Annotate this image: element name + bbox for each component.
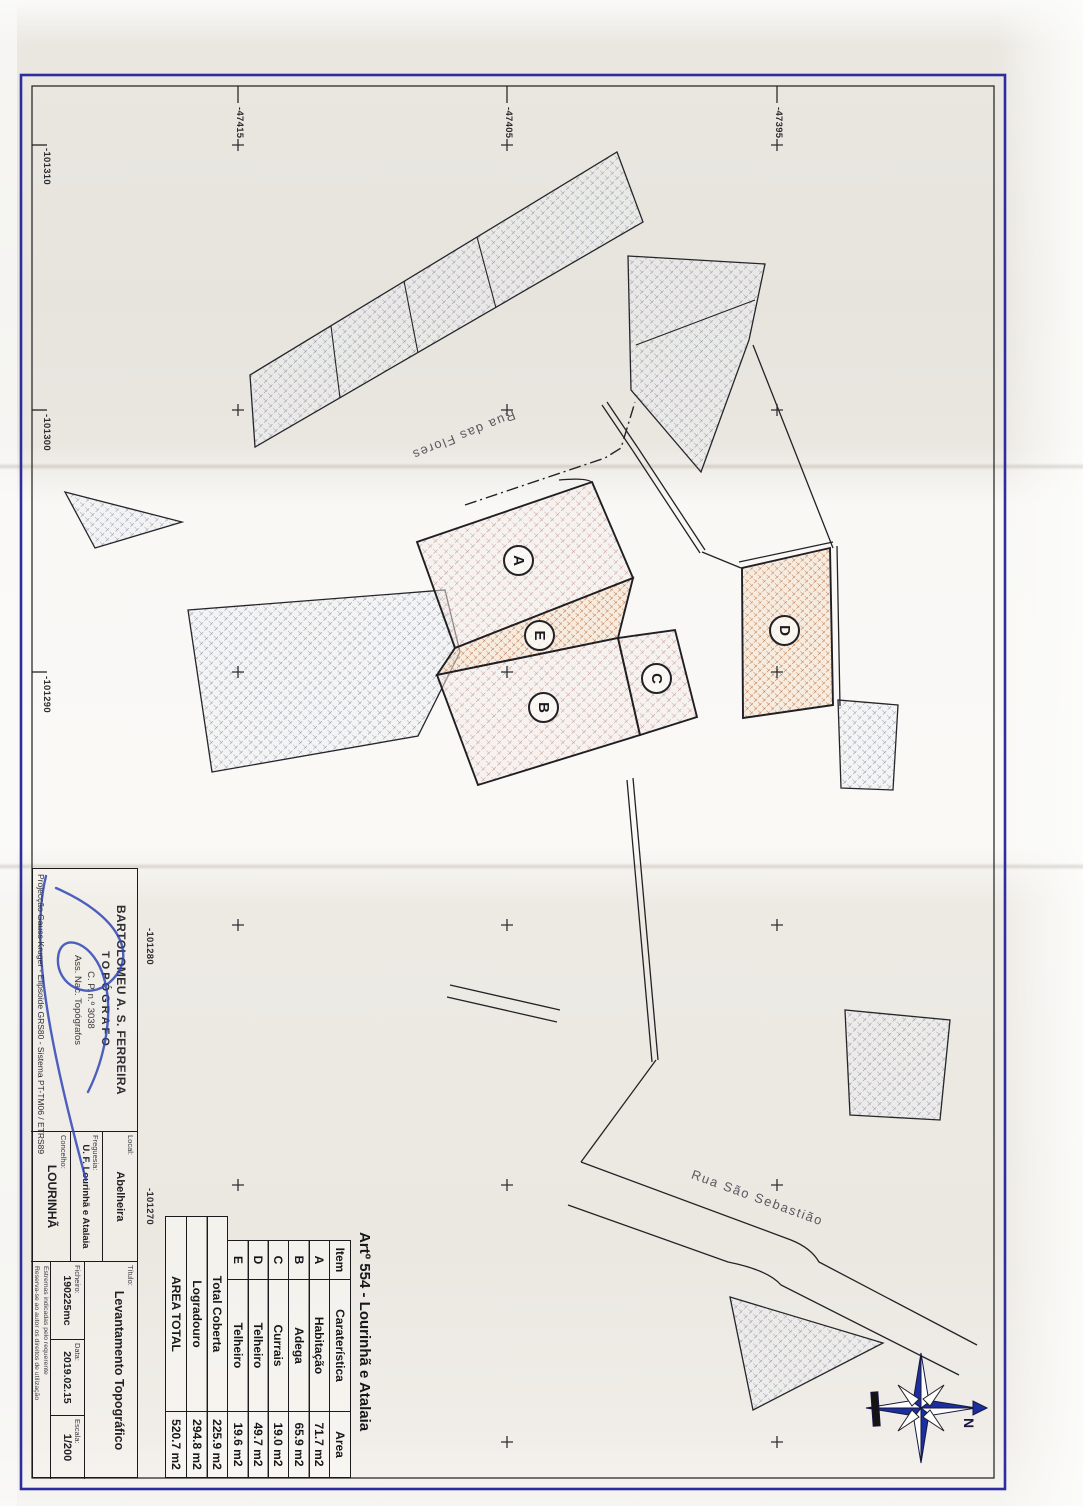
total-label: Logradouro bbox=[187, 1217, 207, 1411]
cell-caracteristica: Telheiro bbox=[228, 1279, 248, 1411]
grid-label-northing: -47405 bbox=[503, 107, 514, 138]
hatched-triangle-south bbox=[65, 492, 182, 548]
boundary-line bbox=[753, 345, 833, 548]
area-annotation-table: Artº 554 - Lourinhã e Atalaia Item Carat… bbox=[165, 1216, 373, 1480]
hatched-square-northeast bbox=[845, 1010, 950, 1120]
cell-item: B bbox=[289, 1241, 309, 1279]
cell-caracteristica: Telheiro bbox=[248, 1279, 268, 1411]
table-row: E Telheiro 19.6 m2 bbox=[227, 1240, 249, 1478]
total-value: 225.9 m2 bbox=[207, 1411, 227, 1477]
cell-item: A bbox=[309, 1241, 329, 1279]
cell-area: 71.7 m2 bbox=[309, 1411, 329, 1477]
grid-label-northing: -47415 bbox=[234, 107, 245, 138]
field-value: 1/200 bbox=[61, 1416, 73, 1479]
grid-label-easting: -101310 bbox=[41, 148, 52, 185]
total-label: Total Coberta bbox=[207, 1217, 227, 1411]
parcel-label-c: C bbox=[641, 663, 672, 694]
parcel-label-a: A bbox=[503, 545, 534, 576]
hatched-parcel-northeast bbox=[628, 256, 765, 472]
header-caracteristica: Caraterística bbox=[330, 1279, 350, 1411]
table-row: C Currais 19.0 m2 bbox=[267, 1240, 289, 1478]
hatched-triangle-southeast bbox=[730, 1297, 883, 1410]
parcel-label-e: E bbox=[524, 620, 555, 651]
cell-item: C bbox=[268, 1241, 288, 1279]
grid-label-easting: -101300 bbox=[41, 414, 52, 451]
cell-caracteristica: Habitação bbox=[309, 1279, 329, 1411]
table-total-row: Logradouro 294.8 m2 bbox=[186, 1216, 208, 1478]
cell-area: 49.7 m2 bbox=[248, 1411, 268, 1477]
compass-bar bbox=[871, 1392, 880, 1426]
cell-item: E bbox=[228, 1241, 248, 1279]
wall-double-line bbox=[633, 448, 741, 568]
field-value: 190225mc bbox=[61, 1262, 73, 1339]
header-item: Item bbox=[330, 1241, 350, 1279]
parcel-label-d: D bbox=[769, 615, 800, 646]
field-titulo: Título: Levantamento Topográfico bbox=[85, 1261, 137, 1479]
table-row: D Telheiro 49.7 m2 bbox=[247, 1240, 269, 1478]
field-label: Escala: bbox=[73, 1419, 82, 1479]
total-value: 520.7 m2 bbox=[166, 1411, 186, 1477]
grid-label-northing: -47395 bbox=[773, 107, 784, 138]
field-value: 2019.02.15 bbox=[61, 1340, 73, 1415]
table-header-row: Item Caraterística Area bbox=[329, 1240, 351, 1478]
field-escala: Escala: 1/200 bbox=[51, 1415, 85, 1479]
boundary-lines bbox=[447, 345, 977, 1375]
field-data: Data: 2019.02.15 bbox=[51, 1339, 85, 1415]
table-total-row: Total Coberta 225.9 m2 bbox=[206, 1216, 228, 1478]
hatched-strip-rua-das-flores bbox=[250, 152, 643, 447]
field-label: Título: bbox=[126, 1265, 135, 1479]
grid-label-easting: -101270 bbox=[144, 1188, 155, 1225]
field-label: Data: bbox=[73, 1343, 82, 1415]
survey-sheet: -101310 -101300 -101290 -101280 -101270 … bbox=[0, 0, 1083, 1506]
cell-caracteristica: Adega bbox=[289, 1279, 309, 1411]
road-edge-segment bbox=[447, 985, 560, 1022]
header-area: Area bbox=[330, 1411, 350, 1477]
north-compass-icon bbox=[866, 1353, 987, 1463]
cell-area: 65.9 m2 bbox=[289, 1411, 309, 1477]
parcel-label-b: B bbox=[528, 692, 559, 723]
compass-north-label: N bbox=[961, 1418, 977, 1428]
hatched-square-east bbox=[838, 700, 898, 790]
cell-area: 19.0 m2 bbox=[268, 1411, 288, 1477]
cell-area: 19.6 m2 bbox=[228, 1411, 248, 1477]
plan-drawing bbox=[0, 0, 1083, 1506]
grid-label-easting: -101290 bbox=[41, 676, 52, 713]
field-label: Ficheiro: bbox=[73, 1265, 82, 1339]
projection-note: Projecção Gauss-Kruger - Elipsoide GRS80… bbox=[36, 874, 46, 1304]
table-row: B Adega 65.9 m2 bbox=[288, 1240, 310, 1478]
table-total-row: AREA TOTAL 520.7 m2 bbox=[165, 1216, 187, 1478]
north-arrowhead bbox=[973, 1401, 987, 1415]
wall-road-connector bbox=[581, 1060, 656, 1162]
field-ficheiro: Ficheiro: 190225mc bbox=[51, 1261, 85, 1339]
plan-title: Artº 554 - Lourinhã e Atalaia bbox=[356, 1232, 373, 1480]
scanned-survey-page: -101310 -101300 -101290 -101280 -101270 … bbox=[0, 0, 1083, 1506]
signature-scrawl bbox=[28, 860, 148, 1190]
field-value: Levantamento Topográfico bbox=[112, 1262, 126, 1479]
total-label: AREA TOTAL bbox=[166, 1217, 186, 1411]
cell-caracteristica: Currais bbox=[268, 1279, 288, 1411]
hatched-parcel-west bbox=[188, 590, 460, 772]
total-value: 294.8 m2 bbox=[187, 1411, 207, 1477]
table-row: A Habitação 71.7 m2 bbox=[308, 1240, 330, 1478]
cell-item: D bbox=[248, 1241, 268, 1279]
long-wall-double-line bbox=[627, 778, 658, 1062]
